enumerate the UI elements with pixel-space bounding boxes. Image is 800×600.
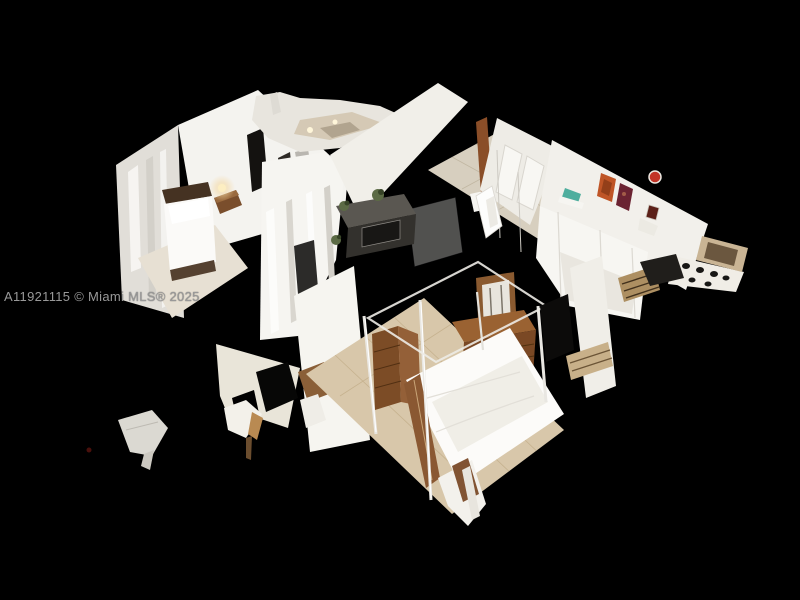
- red-wall-circle: [649, 171, 661, 183]
- watermark: A11921115 © Miami MLS® 2025: [4, 289, 200, 304]
- dark-doorway: [540, 294, 574, 362]
- mls-listing-photo: A11921115 © Miami MLS® 2025: [0, 0, 800, 600]
- acrylic-desk: [408, 198, 462, 266]
- media-console: [331, 189, 462, 266]
- ceiling-light: [307, 127, 313, 133]
- fragment-dot: [87, 448, 92, 453]
- chest-front: [372, 326, 401, 410]
- floating-fragments: [87, 400, 264, 470]
- ceiling-light: [333, 120, 338, 125]
- fragment-blob: [118, 410, 168, 456]
